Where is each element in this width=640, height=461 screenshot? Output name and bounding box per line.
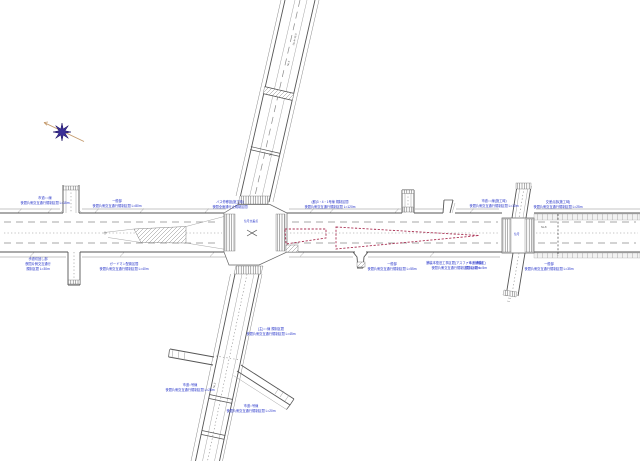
annotation: 一般部 夜間片側交互通行規制区間 L=35m: [525, 262, 574, 272]
road-plan-drawing: 市道○○線 夜間片側交互通行規制区間 L=15m 一般部 夜間片側交互通行規制区…: [0, 0, 640, 461]
diagonal-road-south: [191, 274, 262, 461]
right-cross-street-down: [503, 253, 525, 302]
annotation: 交差点部(施工時) 夜間片側交互通行規制区間 L=25m: [534, 200, 583, 210]
annotation: 歩道切回し部 夜間片側交互通行 規制区間 L=30m: [25, 257, 51, 271]
right-intersection-label: 信号: [514, 232, 520, 236]
plan-geometry: [0, 0, 640, 461]
annotation: 市道○号線 規制区間 L=5m: [465, 261, 487, 271]
north-arrow-icon: [44, 122, 84, 142]
side-street-mid-up: [402, 190, 414, 213]
side-street-left-down: [68, 252, 80, 285]
annotation: ガードマン配置区間 夜間片側交互通行規制区間 L=40m: [100, 262, 149, 272]
annotation: (都)3・4・1号線 規制区間 夜間片側交互通行規制区間 L=120m: [305, 200, 356, 210]
branch-road-left: [169, 349, 215, 365]
main-road-horizontal: [0, 209, 640, 259]
annotation: (主)○○線 規制区間 夜間片側交互通行規制区間 L=45m: [247, 327, 296, 337]
annotation: 市道○号線 夜間片側交互通行規制区間 L=25m: [166, 383, 215, 393]
regulation-area-red-dashed: [285, 227, 479, 249]
diagonal-road-north: [236, 0, 319, 202]
annotation: 市道○○線(施工時) 夜間片側交互通行規制区間 L=10m: [470, 199, 519, 209]
side-street-mid-down: [353, 252, 368, 268]
branch-road-right: [234, 365, 295, 410]
annotation: 市道○号線 夜間片側交互通行規制区間 L=20m: [227, 404, 276, 414]
side-street-y-up: [443, 200, 455, 213]
station-label: No.8: [541, 226, 546, 229]
annotation: バス停移設(施工時) 夜間全面通行止規制区間: [212, 200, 247, 210]
annotation: 一般部 夜間片側交互通行規制区間 L=80m: [93, 199, 142, 209]
center-intersection-label: 信号交差点: [244, 219, 258, 223]
annotation: 一般部 夜間片側交互通行規制区間 L=55m: [368, 262, 417, 272]
annotation: 市道○○線 夜間片側交互通行規制区間 L=15m: [21, 196, 70, 206]
